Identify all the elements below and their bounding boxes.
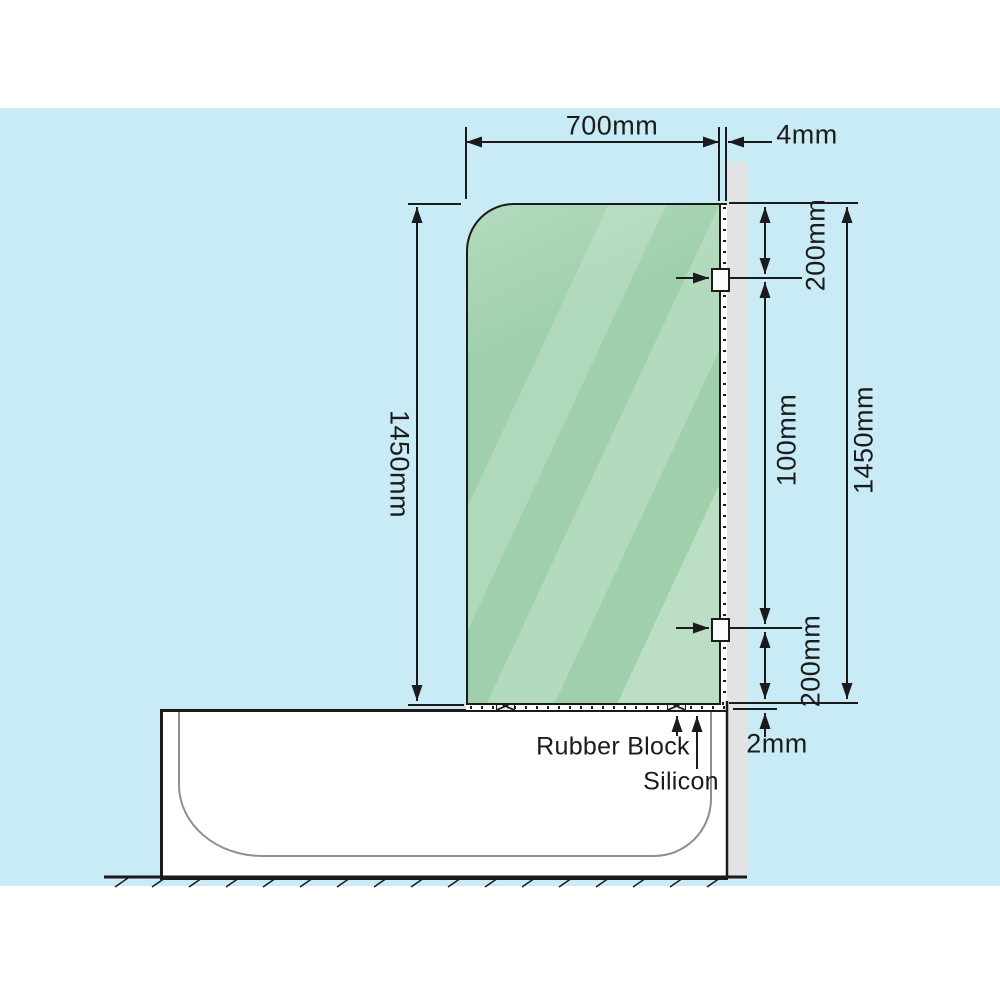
dim-label-1450mm-right: 1450mm [851, 386, 878, 494]
dim-label-4mm: 4mm [776, 122, 838, 149]
rubber-block-label: Rubber Block [536, 735, 690, 760]
dim-label-200mm-top: 200mm [803, 199, 830, 292]
dim-label-2mm: 2mm [746, 731, 808, 758]
dim-label-700mm: 700mm [566, 113, 659, 140]
bracket-pointer-arrows [676, 278, 709, 628]
dim-label-200mm-bottom: 200mm [798, 615, 825, 708]
floor-hatching [115, 878, 720, 887]
dim-1450mm-left-lines [408, 204, 464, 705]
dimension-linework [0, 0, 1000, 1000]
diagram-canvas: 700mm 4mm 1450mm 200mm 100mm 1450mm 200m… [0, 0, 1000, 1000]
dim-label-100mm: 100mm [774, 394, 801, 487]
silicon-label: Silicon [643, 770, 719, 795]
dim-label-1450mm-left: 1450mm [386, 410, 413, 518]
